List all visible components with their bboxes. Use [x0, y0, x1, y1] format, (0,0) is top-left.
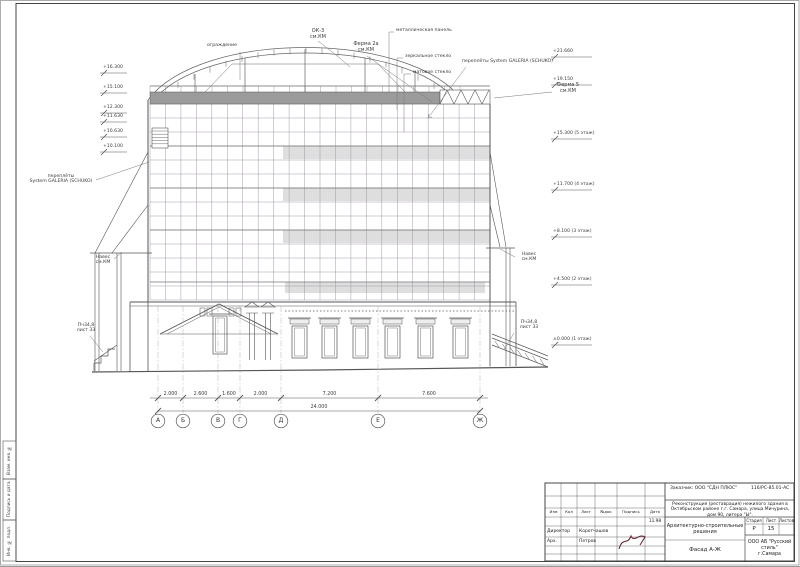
ground-and-stairs: [92, 334, 548, 372]
tb-firm-city: г.Самара: [758, 552, 781, 557]
axis-bubble-label: Ж: [473, 417, 487, 424]
tb-role-arch: Арх.: [547, 539, 579, 544]
tb-role-director: Директор: [547, 529, 579, 534]
tb-name-director: Коротчашов: [579, 529, 617, 534]
elevation-mark-right: +8.100 (3 этаж): [553, 229, 592, 234]
elevation-mark-right: +15.300 (5 этаж): [553, 131, 595, 136]
tb-col-ndok: №док: [595, 510, 617, 515]
label-stair-right: Пч34,8 лист 33: [515, 320, 543, 331]
tb-col-izm: Изм: [546, 510, 561, 515]
tb-drawing-title: Фасад А-Ж: [666, 547, 744, 554]
dimension-total: 24.000: [304, 405, 334, 410]
label-truss2a: Ферма 2а см.КМ: [349, 42, 383, 54]
drawing-sheet: ограждение ОК-3 см.КМ Ферма 2а см.КМ мет…: [0, 0, 800, 567]
label-truss5: Ферма 5 см.КМ: [552, 83, 584, 95]
label-stair-left: Пч34,8 лист 33: [72, 323, 100, 334]
tb-firm-name: ООО АБ "Русский стиль": [748, 540, 791, 551]
label-matte-glass: матовое стекло: [413, 70, 463, 75]
tb-firm: ООО АБ "Русский стиль"г.Самара: [745, 540, 794, 557]
elevation-mark-right: ±0.000 (1 этаж): [553, 337, 592, 342]
tb-col-list: Лист: [577, 510, 595, 515]
dimension-value: 7.600: [414, 392, 444, 397]
label-ok3: ОК-3 см.КМ: [303, 29, 333, 41]
tb-stage: Р: [745, 526, 763, 533]
axis-bubble-label: Г: [233, 417, 247, 424]
axis-bubble-label: А: [151, 417, 165, 424]
elevation-mark-left: +12.300: [103, 105, 123, 110]
axis-bubble-label: Д: [274, 417, 288, 424]
tb-sheets-label: Листов: [779, 519, 794, 524]
label-metal-panel: металлическая панель: [396, 28, 456, 33]
dimension-value: 2.000: [156, 392, 186, 397]
elevation-mark-left: +15.100: [103, 85, 123, 90]
stair-right: [492, 334, 548, 367]
stamp-vzam-inv: Взам. инв. №: [3, 441, 16, 479]
stamp-podpis-data: Подпись и дата: [3, 479, 16, 520]
label-canopy-left: Навес см.КМ: [90, 255, 116, 266]
label-mirror-glass: зеркальное стекло: [405, 54, 460, 59]
lower-facade: [130, 302, 516, 372]
tb-section: Архитектурно-строительные решения: [666, 523, 744, 535]
tb-customer: Заказчик: ООО "СДН ПЛЮС": [670, 486, 754, 491]
stamp-inv-podl: Инв. № подл.: [3, 520, 16, 561]
stair-left: [94, 345, 117, 371]
metal-panel-band: [150, 92, 440, 104]
elevation-mark-left: +10.630: [103, 129, 123, 134]
axis-bubble-label: В: [211, 417, 225, 424]
label-glazing-left: переплёты System GALERIA (SCHUKO): [28, 174, 94, 185]
dimension-value: 1.600: [214, 392, 244, 397]
label-canopy-right: Навес см.КМ: [516, 252, 542, 263]
elevation-mark-left: +16.300: [103, 65, 123, 70]
canopies: [90, 152, 515, 371]
tb-col-podpis: Подпись: [617, 510, 645, 515]
elevation-mark-left: +11.630: [103, 114, 123, 119]
tb-col-kol: Кол: [561, 510, 577, 515]
tb-name-arch: Петров: [579, 539, 617, 544]
tb-code: 116/РС-85.01-АС: [751, 486, 793, 491]
tb-sheet-label: Лист: [763, 519, 779, 524]
elevation-mark-right: +19.150: [553, 77, 573, 82]
dimension-lines: [150, 306, 488, 428]
tb-sheet: 15: [763, 526, 779, 533]
tb-col-data: Дата: [645, 510, 665, 515]
elevation-mark-right: +21.660: [553, 49, 573, 54]
dimension-value: 7.200: [315, 392, 345, 397]
tb-stage-label: Стадия: [745, 519, 763, 524]
elevation-mark-right: +11.700 (4 этаж): [553, 182, 595, 187]
axis-bubble-label: Е: [371, 417, 385, 424]
tb-project: Реконструкция (реставрация) нежилого зда…: [668, 502, 792, 518]
dimension-value: 2.000: [246, 392, 276, 397]
label-railing: ограждение: [203, 43, 241, 48]
window-row: [288, 318, 472, 358]
elevation-mark-left: +10.100: [103, 144, 123, 149]
tb-date: 11.98: [645, 519, 665, 524]
axis-bubble-label: Б: [176, 417, 190, 424]
dimension-value: 2.600: [186, 392, 216, 397]
signature-scribble: [619, 536, 645, 549]
label-glazing-right: переплёты System GALERIA (SCHUKO): [462, 59, 580, 64]
elevation-mark-right: +4.500 (2 этаж): [553, 277, 592, 282]
